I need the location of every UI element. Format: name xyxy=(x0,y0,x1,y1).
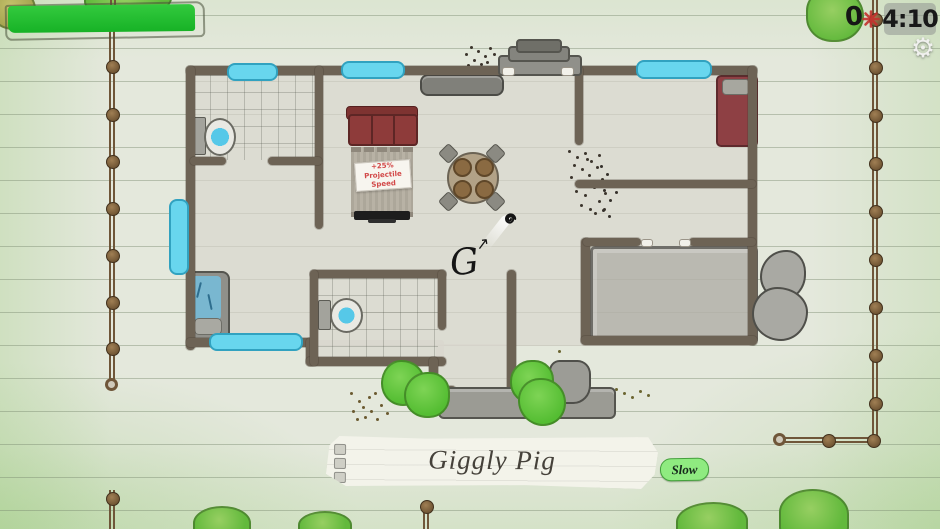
wall-segment xyxy=(583,238,641,246)
rope-knot xyxy=(106,296,120,310)
wall-segment xyxy=(575,66,583,145)
gear-icon: ⚙ xyxy=(911,33,935,64)
player-name: Giggly Pig xyxy=(326,444,658,477)
rope-end-loop xyxy=(105,378,118,391)
kitchen-counter xyxy=(420,74,504,96)
plate xyxy=(453,180,472,199)
bush xyxy=(404,372,450,418)
aim-arrow-icon: ↗ xyxy=(475,233,491,254)
red-asterisk-icon xyxy=(862,10,880,28)
rope-knot xyxy=(869,205,883,219)
health-bar xyxy=(8,4,195,33)
plate xyxy=(453,158,472,177)
dirt-speckles xyxy=(600,165,603,168)
timer-chip: 4:10 xyxy=(884,3,936,35)
plate xyxy=(475,180,494,199)
plate xyxy=(475,158,494,177)
pickup-tag-line2: Projectile Speed xyxy=(356,169,411,190)
wall-segment xyxy=(581,336,757,345)
wall-segment xyxy=(689,238,756,246)
couch xyxy=(348,114,418,146)
bed-blue-mattress xyxy=(191,276,221,320)
settings-gear-button[interactable]: ⚙ xyxy=(908,33,938,63)
rope-knot xyxy=(822,434,836,448)
dirt-speckles xyxy=(568,150,571,153)
blanket-squiggle xyxy=(196,282,202,298)
rope-knot xyxy=(106,342,120,356)
couch-cushion-seam xyxy=(393,116,395,144)
dirt-speckles xyxy=(558,350,561,353)
wall-segment xyxy=(190,157,226,165)
pickup-tag: +25% Projectile Speed xyxy=(354,159,412,192)
rope-knot xyxy=(106,108,120,122)
door-leaf xyxy=(641,239,653,247)
player-name-plate: Giggly Pig xyxy=(326,435,658,489)
toilet-bowl xyxy=(330,298,363,333)
toilet-bowl xyxy=(204,118,236,156)
door-leaf xyxy=(561,67,574,76)
rope-knot xyxy=(106,60,120,74)
rope-knot xyxy=(869,301,883,315)
wall-segment xyxy=(306,357,446,366)
rope-knot xyxy=(106,249,120,263)
status-badge: Slow xyxy=(660,458,709,482)
rope-knot xyxy=(869,109,883,123)
wall-segment xyxy=(310,270,318,366)
rope-knot xyxy=(869,397,883,411)
dirt-speckles xyxy=(470,46,473,49)
wall-segment xyxy=(575,180,756,188)
tv-stand xyxy=(368,219,396,223)
wall-segment xyxy=(310,270,446,278)
window xyxy=(341,61,405,79)
pillow xyxy=(722,79,750,95)
blanket-squiggle xyxy=(207,294,212,310)
window xyxy=(636,60,712,79)
window xyxy=(169,199,189,275)
dirt-speckles xyxy=(350,392,353,395)
rope-knot xyxy=(869,61,883,75)
grey-mat xyxy=(590,246,758,344)
door-leaf xyxy=(502,67,515,76)
window xyxy=(209,333,303,351)
rope-knot xyxy=(106,202,120,216)
wall-segment xyxy=(268,157,322,165)
wall-segment xyxy=(315,66,323,229)
couch-cushion-seam xyxy=(371,116,373,144)
game-screen: +25% Projectile Speed xyxy=(0,0,940,529)
projectile-spiral-icon xyxy=(497,206,523,232)
rope-knot xyxy=(867,434,881,448)
rope-knot xyxy=(106,155,120,169)
rope-knot xyxy=(869,253,883,267)
rock xyxy=(752,287,808,341)
bush xyxy=(518,378,566,426)
rope-knot xyxy=(869,157,883,171)
window xyxy=(227,63,278,81)
rope-end-loop xyxy=(773,433,786,446)
rope-knot xyxy=(420,500,434,514)
rope-knot xyxy=(106,492,120,506)
door-leaf xyxy=(679,239,691,247)
timer-value: 4:10 xyxy=(882,5,938,33)
wall-segment xyxy=(438,270,446,330)
wall-segment xyxy=(581,238,590,344)
rope-knot xyxy=(869,349,883,363)
porch-step xyxy=(516,39,562,53)
